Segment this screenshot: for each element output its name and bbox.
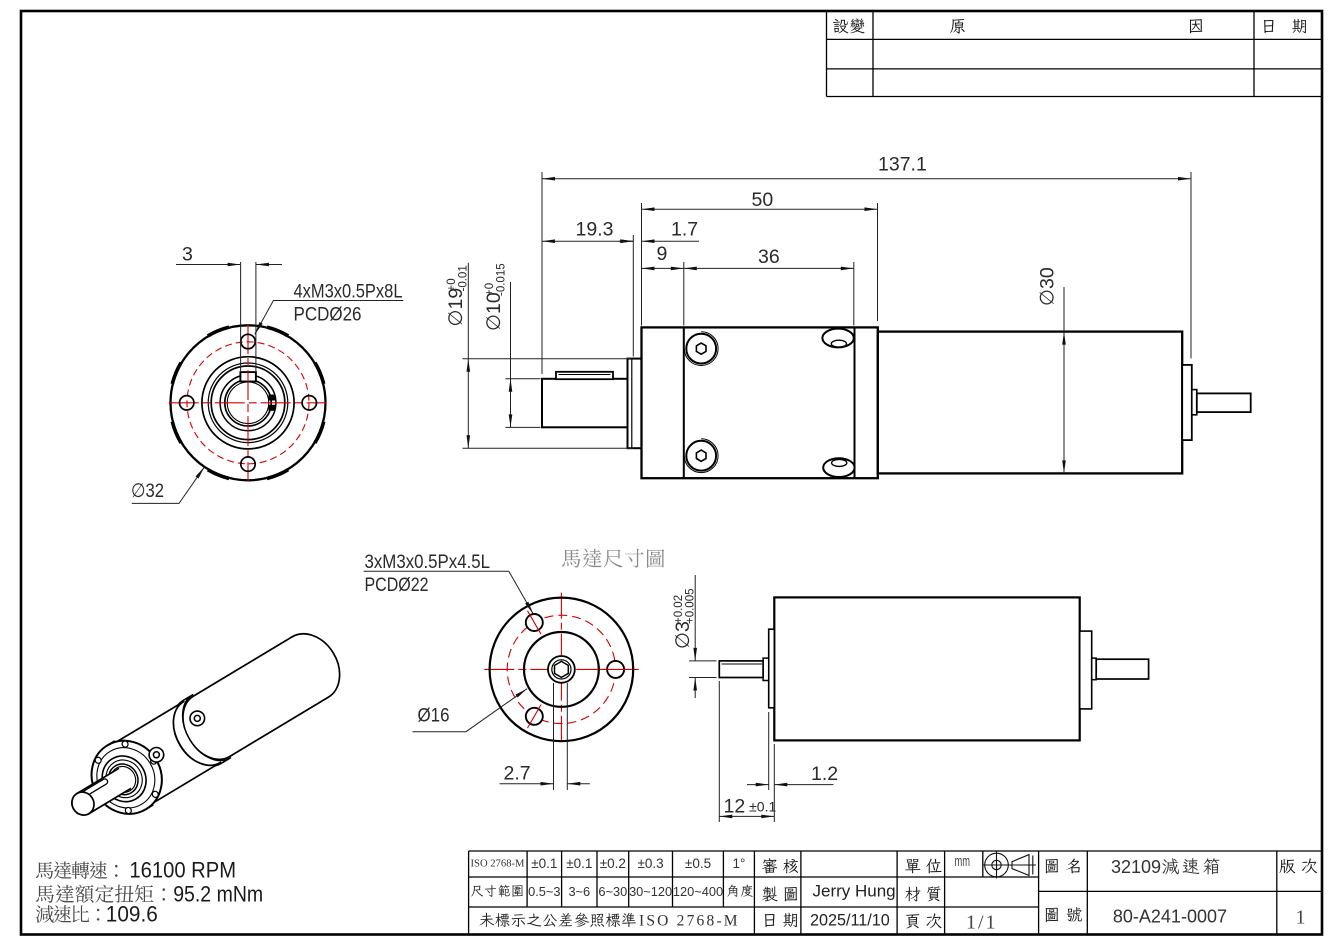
svg-text:∅32: ∅32: [131, 480, 164, 502]
svg-text:16100 RPM: 16100 RPM: [129, 858, 236, 883]
svg-text:ISO 2768-M: ISO 2768-M: [471, 858, 525, 870]
svg-text:19.3: 19.3: [576, 218, 614, 240]
svg-text:+0.005: +0.005: [685, 589, 697, 625]
svg-text:PCDØ22: PCDØ22: [365, 574, 429, 596]
svg-text:30~120: 30~120: [629, 884, 672, 899]
svg-text:Ø16: Ø16: [418, 705, 450, 727]
svg-text:9: 9: [657, 243, 668, 265]
svg-text:12 ±0.1: 12 ±0.1: [724, 796, 777, 818]
svg-text:∅30: ∅30: [1037, 267, 1059, 306]
svg-text:3~6: 3~6: [568, 884, 590, 899]
svg-text:3: 3: [182, 244, 193, 266]
svg-text:+0: +0: [446, 278, 458, 291]
svg-text:0.5~3: 0.5~3: [528, 884, 560, 899]
svg-text:±0.1: ±0.1: [566, 856, 592, 871]
svg-text:120~400: 120~400: [673, 884, 723, 899]
svg-text:1°: 1°: [732, 856, 745, 871]
svg-text:+0.02: +0.02: [673, 595, 685, 624]
svg-text:1.2: 1.2: [811, 763, 838, 785]
svg-text:1/1: 1/1: [966, 912, 998, 934]
svg-text:3xM3x0.5Px4.5L: 3xM3x0.5Px4.5L: [365, 551, 491, 573]
svg-text:2.7: 2.7: [504, 763, 531, 785]
svg-text:±0.2: ±0.2: [600, 856, 626, 871]
svg-text:∅10: ∅10: [483, 292, 505, 331]
svg-text:∅19: ∅19: [445, 288, 467, 327]
svg-text:∅3: ∅3: [672, 621, 694, 649]
svg-text:4xM3x0.5Px8L: 4xM3x0.5Px8L: [294, 281, 403, 303]
svg-text:137.1: 137.1: [878, 154, 927, 176]
svg-text:±0.5: ±0.5: [685, 856, 711, 871]
svg-text:1: 1: [1296, 907, 1306, 929]
svg-text:95.2 mNm: 95.2 mNm: [173, 881, 263, 906]
svg-text:50: 50: [752, 189, 774, 211]
svg-text:-0.015: -0.015: [496, 263, 508, 296]
svg-text:PCDØ26: PCDØ26: [294, 304, 362, 326]
svg-text:±0.3: ±0.3: [638, 856, 664, 871]
svg-text:Jerry Hung: Jerry Hung: [813, 882, 896, 901]
svg-text:36: 36: [758, 246, 780, 268]
svg-text:6~30: 6~30: [598, 884, 627, 899]
svg-text:2025/11/10: 2025/11/10: [810, 911, 890, 929]
svg-text:ISO 2768-M: ISO 2768-M: [639, 913, 740, 930]
svg-text:32109: 32109: [1111, 857, 1161, 877]
svg-text:±0.1: ±0.1: [531, 856, 557, 871]
svg-text:1.7: 1.7: [671, 218, 698, 240]
svg-text:mm: mm: [955, 853, 971, 870]
svg-text:109.6: 109.6: [106, 901, 158, 926]
svg-text:+0: +0: [484, 283, 496, 296]
svg-text:-0.01: -0.01: [458, 265, 470, 291]
svg-text:80-A241-0007: 80-A241-0007: [1113, 907, 1227, 927]
